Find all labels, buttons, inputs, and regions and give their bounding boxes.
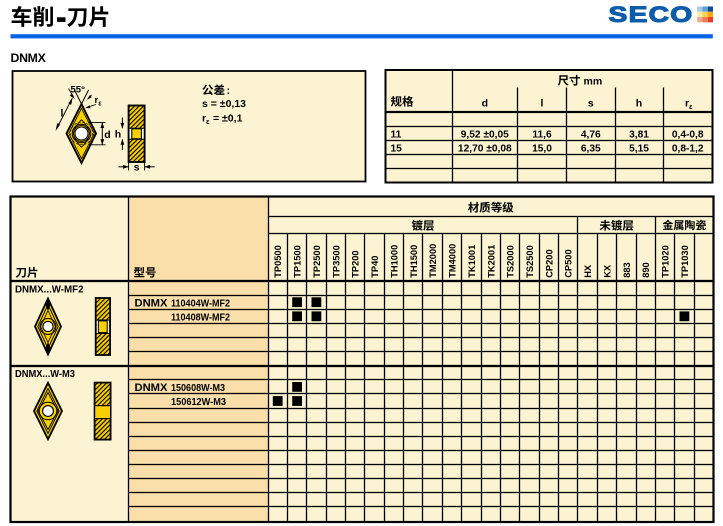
svg-text:TP1500: TP1500 bbox=[293, 245, 303, 278]
svg-text:h: h bbox=[115, 129, 121, 141]
svg-text:h: h bbox=[636, 98, 642, 110]
svg-text:5,15: 5,15 bbox=[629, 144, 649, 155]
svg-text:883: 883 bbox=[622, 262, 632, 278]
svg-text:CP500: CP500 bbox=[564, 249, 574, 277]
svg-text:15: 15 bbox=[391, 144, 403, 155]
svg-text:110408W-MF2: 110408W-MF2 bbox=[171, 312, 230, 323]
svg-text:TH1500: TH1500 bbox=[409, 245, 419, 278]
svg-text:l: l bbox=[61, 108, 64, 120]
svg-text:CP200: CP200 bbox=[544, 249, 554, 277]
svg-text:= ±0,1: = ±0,1 bbox=[213, 113, 243, 125]
svg-text:0,4-0,8: 0,4-0,8 bbox=[672, 130, 704, 141]
svg-text:TK1001: TK1001 bbox=[467, 245, 477, 278]
svg-text:l: l bbox=[541, 98, 544, 110]
svg-text:TP40: TP40 bbox=[370, 256, 380, 278]
svg-text:TK2001: TK2001 bbox=[486, 245, 496, 278]
svg-text::: : bbox=[227, 85, 231, 97]
svg-text:HX: HX bbox=[583, 264, 593, 278]
svg-text:TP1030: TP1030 bbox=[680, 245, 690, 278]
svg-text:KX: KX bbox=[602, 264, 612, 278]
svg-text:11,6: 11,6 bbox=[532, 130, 552, 141]
svg-text:TS2000: TS2000 bbox=[506, 245, 516, 278]
svg-text:TH1000: TH1000 bbox=[389, 245, 399, 278]
svg-text:s = ±0,13: s = ±0,13 bbox=[202, 98, 246, 110]
svg-text:DNMX: DNMX bbox=[11, 51, 47, 65]
svg-text:mm: mm bbox=[584, 76, 603, 88]
svg-text:9,52 ±0,05: 9,52 ±0,05 bbox=[461, 130, 509, 141]
svg-text:TS2500: TS2500 bbox=[525, 245, 535, 278]
svg-text:s: s bbox=[588, 98, 594, 110]
svg-text:d: d bbox=[104, 129, 110, 141]
svg-text:DNMX: DNMX bbox=[135, 382, 169, 394]
svg-text:12,70 ±0,08: 12,70 ±0,08 bbox=[458, 144, 512, 155]
svg-text:11: 11 bbox=[391, 130, 402, 141]
svg-text:TP1020: TP1020 bbox=[661, 245, 671, 278]
svg-text:6,35: 6,35 bbox=[581, 144, 601, 155]
svg-text:SECO: SECO bbox=[609, 2, 694, 27]
svg-text:ε: ε bbox=[689, 102, 693, 111]
svg-text:d: d bbox=[482, 98, 488, 110]
svg-text:TP2500: TP2500 bbox=[312, 245, 322, 278]
svg-text:DNMX...W-M3: DNMX...W-M3 bbox=[15, 368, 75, 380]
svg-text:TP3500: TP3500 bbox=[331, 245, 341, 278]
svg-text:ε: ε bbox=[206, 117, 210, 126]
svg-text:TP0500: TP0500 bbox=[273, 245, 283, 278]
svg-text:150612W-M3: 150612W-M3 bbox=[171, 397, 226, 408]
svg-text:110404W-MF2: 110404W-MF2 bbox=[171, 298, 230, 309]
svg-text:55°: 55° bbox=[71, 84, 86, 95]
svg-text:TP200: TP200 bbox=[351, 250, 361, 277]
svg-text:15,0: 15,0 bbox=[532, 144, 552, 155]
svg-text:TM2000: TM2000 bbox=[428, 244, 438, 278]
svg-text:4,76: 4,76 bbox=[581, 130, 601, 141]
svg-text:3,81: 3,81 bbox=[629, 130, 649, 141]
svg-text:DNMX...W-MF2: DNMX...W-MF2 bbox=[15, 283, 84, 295]
svg-text:s: s bbox=[134, 161, 140, 173]
svg-text:890: 890 bbox=[641, 262, 651, 278]
svg-text:TM4000: TM4000 bbox=[448, 244, 458, 278]
svg-text:0,8-1,2: 0,8-1,2 bbox=[672, 144, 704, 155]
svg-text:DNMX: DNMX bbox=[135, 297, 169, 309]
svg-text:150608W-M3: 150608W-M3 bbox=[171, 383, 225, 394]
